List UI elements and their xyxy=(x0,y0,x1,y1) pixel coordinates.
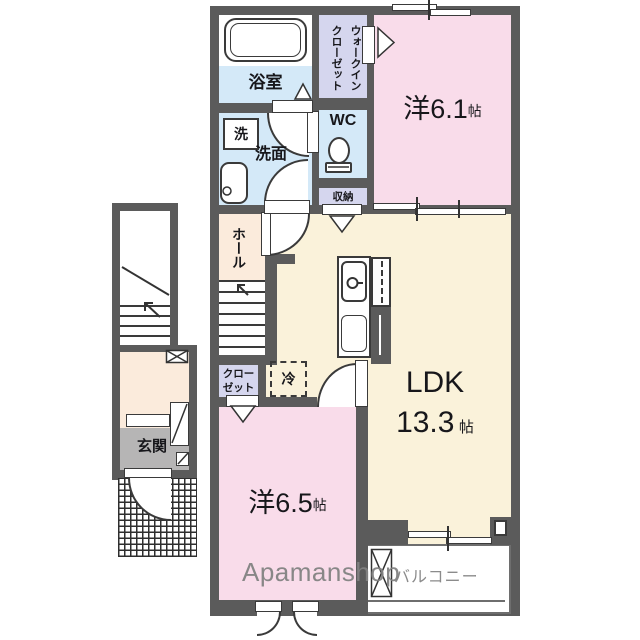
wc-label: WC xyxy=(319,111,367,131)
door-leaf-hall-ldk xyxy=(261,212,271,256)
door-leaf-washroom xyxy=(264,200,310,214)
ldk-unit: 帖 xyxy=(459,419,474,436)
window-mid-pane-2 xyxy=(415,208,506,215)
window-mid-pane-1 xyxy=(373,203,420,210)
ldk-size-line: 13.3 帖 xyxy=(360,406,510,440)
balcony-pillar xyxy=(494,520,507,536)
closet-label-line1: クロー xyxy=(223,368,255,382)
watermark: Apamanshop xyxy=(242,557,400,588)
window-top-pane-2 xyxy=(430,9,471,16)
window-mid-tick-1 xyxy=(416,197,418,221)
ldk-name: LDK xyxy=(360,366,510,400)
annex-stair-treads xyxy=(120,305,170,345)
wall-ldk-bottom-left xyxy=(368,520,408,545)
window-balcony-pane-2 xyxy=(446,537,492,544)
bathroom-door-bar xyxy=(272,100,313,113)
western-6-1-name: 洋6.1 xyxy=(403,87,468,126)
storage-label: 収納 xyxy=(319,189,367,205)
washroom-label: 洗面 xyxy=(234,145,308,165)
hall-label: ホール xyxy=(228,217,250,279)
kitchen-sink xyxy=(341,261,367,302)
balcony-label: バルコニー xyxy=(394,563,479,587)
wall-hall-stub xyxy=(277,254,295,264)
kitchen-dash-line xyxy=(381,261,383,303)
floor-plan: 洗 冷 浴室 ウォークイン クローゼット 洗面 WC 収納 洋6.1 xyxy=(0,0,640,640)
french-door-arc-right xyxy=(293,612,317,636)
kitchen-dash-strip xyxy=(371,257,391,307)
window-balcony-tick xyxy=(447,526,449,551)
western-6-1-label: 洋6.1 帖 xyxy=(374,88,511,124)
french-door-bar-left xyxy=(255,601,282,612)
kitchen-stove xyxy=(341,315,367,352)
entrance-step-bar-2 xyxy=(124,468,172,478)
wall-kitchen-back xyxy=(371,307,391,364)
closet-label-line2: ゼット xyxy=(223,382,255,396)
bathtub-inner xyxy=(230,23,301,57)
kitchen-wall-line xyxy=(379,315,381,355)
french-door-arc-left xyxy=(257,612,281,636)
storage-opening-bar xyxy=(322,204,362,215)
wic-label-line2: クローゼット xyxy=(326,19,345,97)
toilet-base-icon xyxy=(325,162,352,173)
washbasin xyxy=(220,162,248,204)
closet-label: クロー ゼット xyxy=(219,366,258,397)
door-leaf-wc xyxy=(307,111,319,153)
hall-stairs xyxy=(219,280,265,355)
french-door-bar-right xyxy=(292,601,319,612)
fridge-box: 冷 xyxy=(270,361,307,397)
western-6-5-unit: 帖 xyxy=(313,495,327,515)
window-top-tick xyxy=(428,0,430,20)
western-6-5-label: 洋6.5 帖 xyxy=(219,482,356,518)
fridge-label: 冷 xyxy=(282,371,296,387)
wic-label-line1: ウォークイン xyxy=(345,19,364,97)
entrance-label: 玄関 xyxy=(120,437,184,457)
toilet-bowl-icon xyxy=(328,137,350,164)
western-6-5-name: 洋6.5 xyxy=(248,481,313,520)
bathroom-label: 浴室 xyxy=(219,71,312,95)
balcony-rail-line xyxy=(366,600,505,602)
window-balcony-pane-1 xyxy=(408,531,451,538)
window-mid-tick-2 xyxy=(458,200,460,218)
ldk-size: 13.3 xyxy=(396,406,454,439)
washer-label: 洗 xyxy=(234,126,248,142)
ldk-label: LDK 13.3 帖 xyxy=(360,366,510,456)
entrance-step-bar xyxy=(126,414,170,427)
walk-in-closet-label: ウォークイン クローゼット xyxy=(322,19,364,97)
western-6-1-unit: 帖 xyxy=(468,101,482,121)
